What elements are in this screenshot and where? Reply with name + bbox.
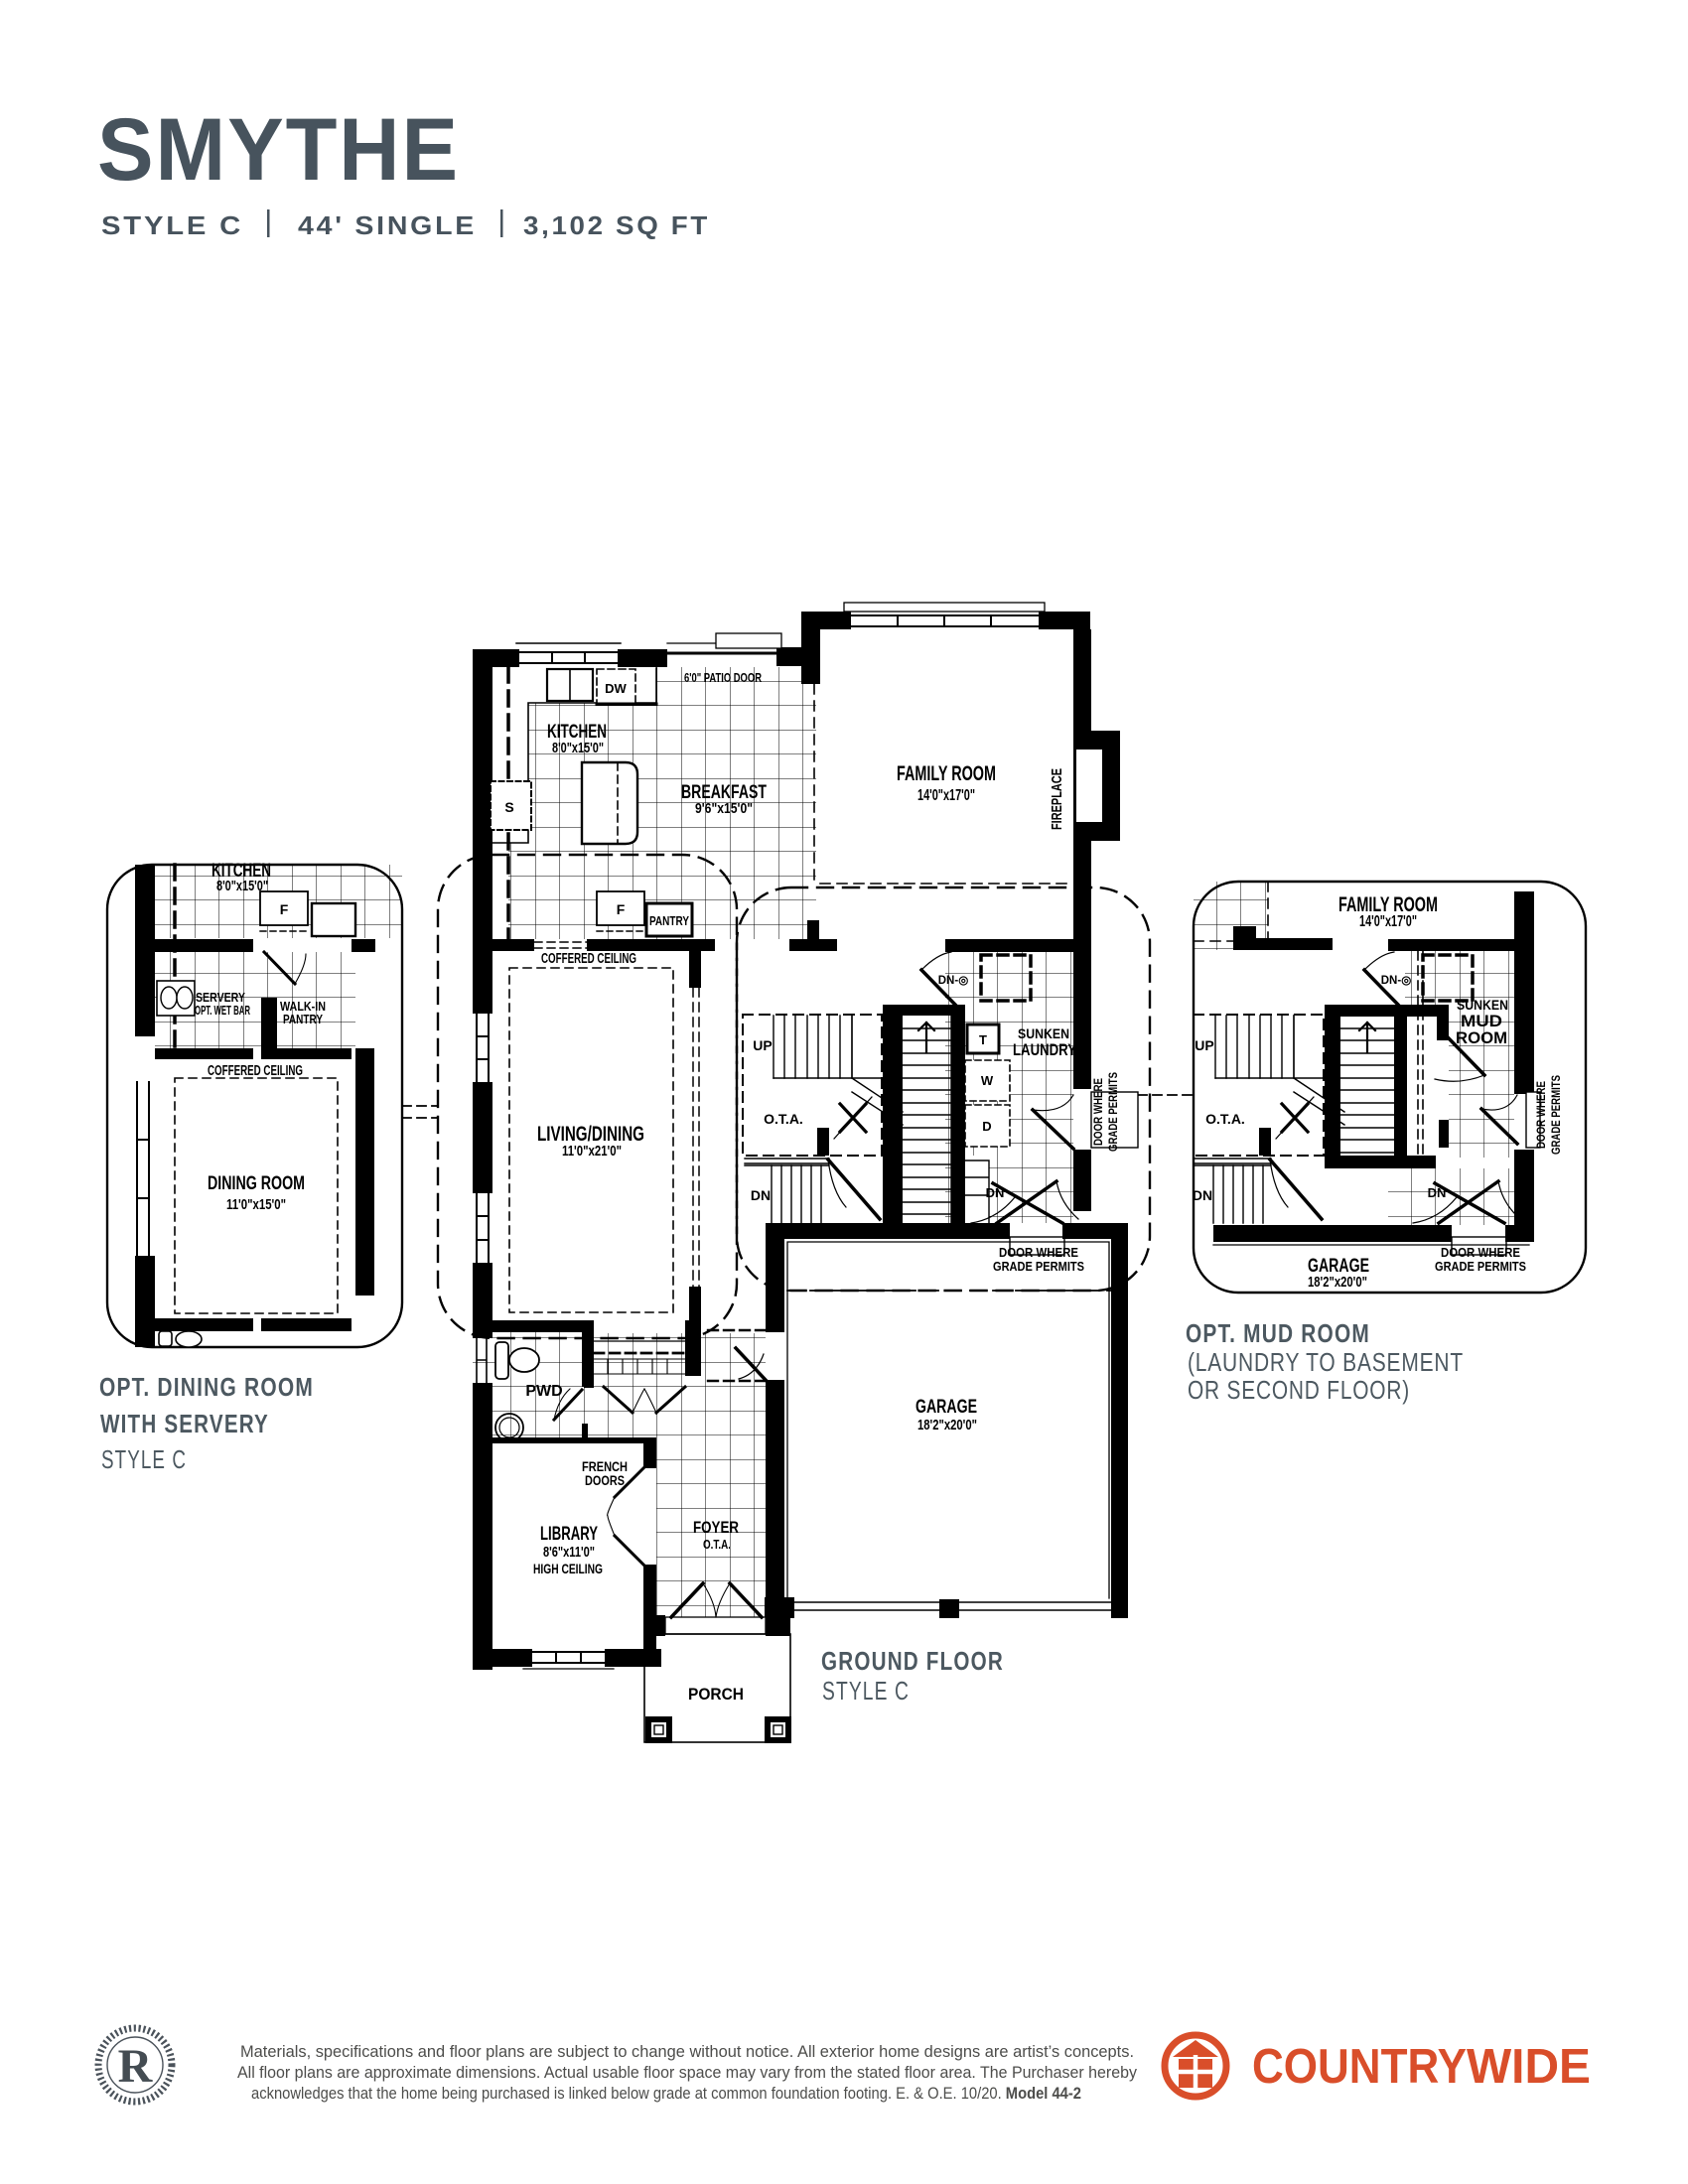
svg-text:DN-◎: DN-◎ (1381, 975, 1412, 987)
svg-text:DOOR WHERE: DOOR WHERE (999, 1245, 1078, 1260)
svg-text:COFFERED CEILING: COFFERED CEILING (541, 951, 636, 967)
svg-text:All floor plans are approximat: All floor plans are approximate dimensio… (237, 2064, 1138, 2082)
svg-text:GARAGE: GARAGE (1308, 1256, 1369, 1277)
svg-text:ROOM: ROOM (1456, 1028, 1507, 1047)
svg-text:6'0" PATIO DOOR: 6'0" PATIO DOOR (684, 671, 762, 685)
svg-text:(LAUNDRY TO BASEMENT: (LAUNDRY TO BASEMENT (1188, 1347, 1464, 1377)
svg-text:GRADE PERMITS: GRADE PERMITS (993, 1259, 1084, 1274)
svg-text:HIGH CEILING: HIGH CEILING (533, 1562, 603, 1576)
svg-text:DOOR WHERE: DOOR WHERE (1093, 1078, 1105, 1146)
svg-text:R: R (118, 2040, 154, 2093)
svg-text:DN: DN (751, 1187, 771, 1203)
svg-text:STYLE C: STYLE C (822, 1676, 910, 1706)
svg-text:DN: DN (1193, 1187, 1212, 1203)
svg-text:FIREPLACE: FIREPLACE (1050, 768, 1065, 830)
svg-text:S: S (504, 799, 513, 815)
svg-text:GRADE PERMITS: GRADE PERMITS (1435, 1259, 1526, 1274)
svg-text:SUNKEN: SUNKEN (1018, 1026, 1069, 1041)
svg-text:DOORS: DOORS (585, 1473, 625, 1488)
svg-text:GROUND FLOOR: GROUND FLOOR (821, 1646, 1004, 1676)
svg-text:STYLE C: STYLE C (101, 1444, 187, 1474)
svg-text:O.T.A.: O.T.A. (703, 1538, 731, 1552)
svg-text:F: F (617, 901, 626, 917)
svg-text:W: W (981, 1073, 994, 1088)
svg-text:14'0"x17'0": 14'0"x17'0" (1359, 913, 1417, 930)
svg-text:UP: UP (753, 1037, 772, 1053)
svg-text:acknowledges that the home bei: acknowledges that the home being purchas… (251, 2085, 1081, 2103)
svg-text:OR SECOND FLOOR): OR SECOND FLOOR) (1188, 1375, 1410, 1405)
svg-text:BREAKFAST: BREAKFAST (681, 782, 767, 803)
svg-text:DN: DN (986, 1185, 1005, 1200)
svg-text:18'2"x20'0": 18'2"x20'0" (1308, 1275, 1367, 1291)
svg-text:9'6"x15'0": 9'6"x15'0" (695, 801, 753, 817)
svg-text:PORCH: PORCH (688, 1685, 744, 1704)
svg-text:OPT. WET BAR: OPT. WET BAR (195, 1004, 250, 1018)
svg-text:UP: UP (1195, 1037, 1213, 1053)
svg-text:PANTRY: PANTRY (649, 913, 689, 928)
svg-text:COUNTRY: COUNTRY (1252, 2040, 1467, 2094)
svg-text:44' SINGLE: 44' SINGLE (298, 210, 477, 240)
svg-text:8'0"x15'0": 8'0"x15'0" (552, 741, 604, 756)
svg-text:LIVING/DINING: LIVING/DINING (537, 1123, 644, 1146)
svg-text:OPT. MUD ROOM: OPT. MUD ROOM (1186, 1318, 1370, 1348)
svg-text:GARAGE: GARAGE (915, 1397, 977, 1418)
svg-text:DINING ROOM: DINING ROOM (208, 1173, 305, 1194)
svg-text:O.T.A.: O.T.A. (1205, 1111, 1245, 1127)
svg-text:WIDE: WIDE (1467, 2040, 1591, 2094)
svg-text:Materials, specifications and: Materials, specifications and floor plan… (240, 2043, 1134, 2061)
svg-text:11'0"x21'0": 11'0"x21'0" (562, 1144, 622, 1160)
svg-text:8'6"x11'0": 8'6"x11'0" (543, 1545, 595, 1561)
svg-text:F: F (280, 901, 289, 917)
svg-text:DN: DN (1428, 1185, 1447, 1200)
svg-text:PANTRY: PANTRY (283, 1013, 324, 1026)
svg-text:DW: DW (605, 681, 627, 696)
svg-text:D: D (982, 1119, 991, 1134)
svg-text:SMYTHE: SMYTHE (97, 99, 460, 199)
svg-text:DOOR WHERE: DOOR WHERE (1441, 1245, 1520, 1260)
svg-text:KITCHEN: KITCHEN (547, 722, 607, 743)
svg-text:DN-◎: DN-◎ (938, 975, 969, 987)
svg-text:SUNKEN: SUNKEN (1457, 998, 1508, 1013)
svg-text:DOOR WHERE: DOOR WHERE (1536, 1081, 1548, 1149)
svg-text:O.T.A.: O.T.A. (764, 1111, 803, 1127)
svg-text:LAUNDRY: LAUNDRY (1013, 1040, 1077, 1059)
svg-text:LIBRARY: LIBRARY (540, 1524, 598, 1545)
svg-text:T: T (979, 1032, 987, 1047)
svg-text:GRADE PERMITS: GRADE PERMITS (1551, 1075, 1563, 1155)
svg-text:14'0"x17'0": 14'0"x17'0" (917, 787, 975, 804)
svg-text:FAMILY ROOM: FAMILY ROOM (897, 762, 996, 785)
svg-text:3,102 SQ FT: 3,102 SQ FT (523, 210, 710, 240)
svg-text:18'2"x20'0": 18'2"x20'0" (917, 1418, 977, 1433)
svg-text:PWD: PWD (525, 1383, 562, 1400)
svg-text:WALK-IN: WALK-IN (280, 1000, 326, 1014)
svg-text:SERVERY: SERVERY (196, 991, 246, 1005)
svg-text:OPT. DINING ROOM: OPT. DINING ROOM (99, 1372, 314, 1402)
svg-text:GRADE PERMITS: GRADE PERMITS (1108, 1072, 1120, 1152)
svg-text:STYLE C: STYLE C (101, 210, 243, 240)
svg-text:FOYER: FOYER (693, 1518, 739, 1537)
svg-text:11'0"x15'0": 11'0"x15'0" (226, 1197, 286, 1213)
svg-text:COFFERED CEILING: COFFERED CEILING (208, 1063, 303, 1079)
svg-text:FRENCH: FRENCH (582, 1459, 628, 1474)
svg-text:WITH SERVERY: WITH SERVERY (100, 1409, 269, 1438)
